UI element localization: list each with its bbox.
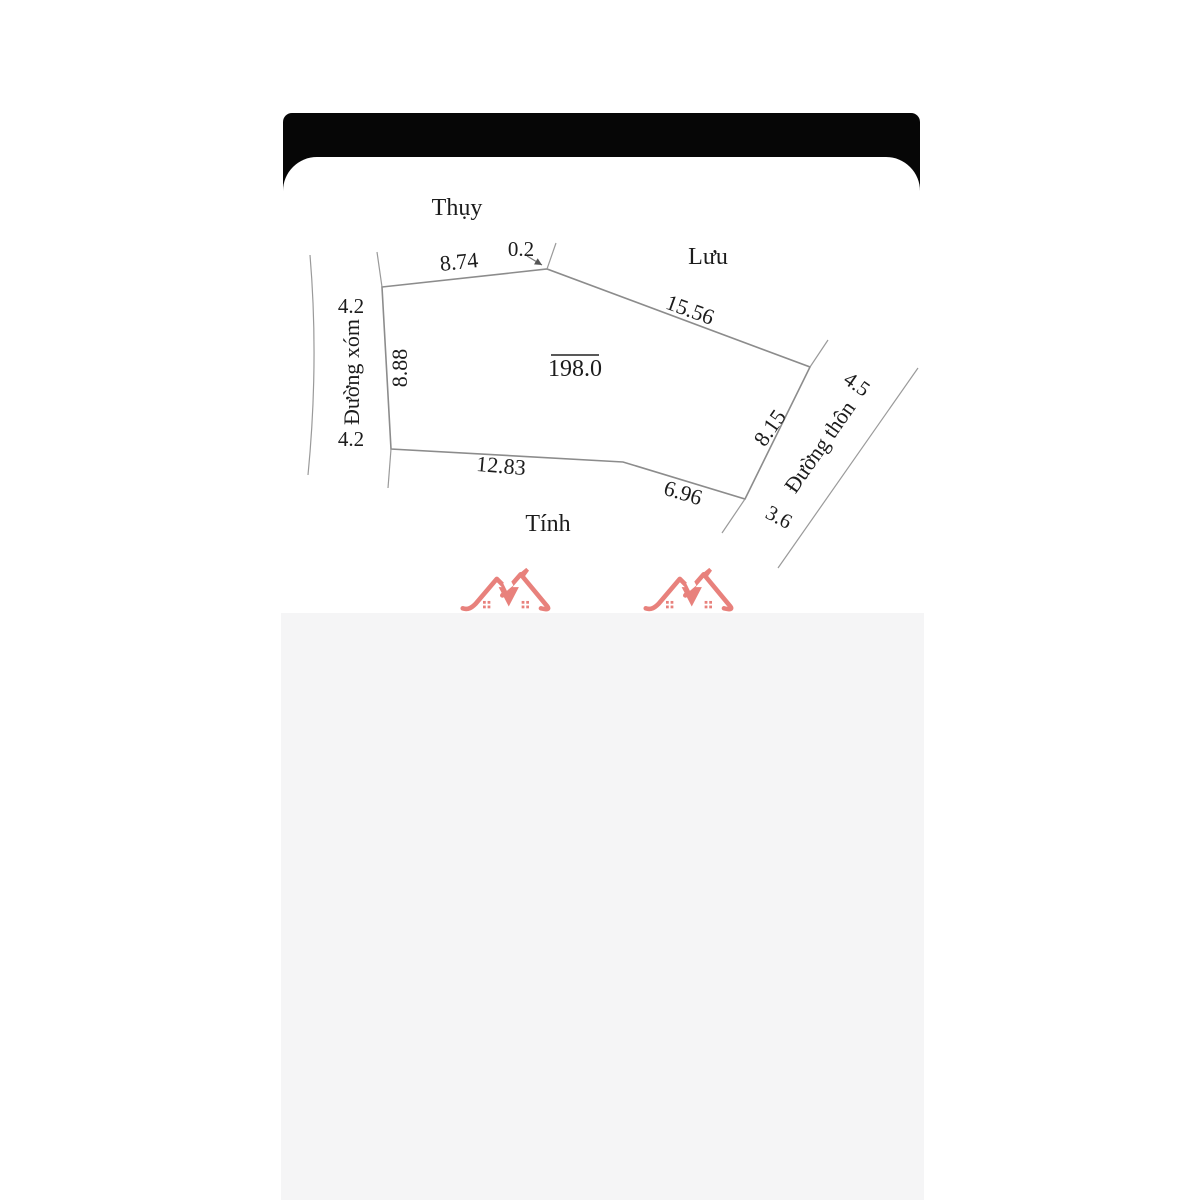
- dim-bottom-edge: 12.83: [475, 451, 526, 480]
- left-road-width-top: 4.2: [338, 294, 364, 318]
- land-plot-diagram: Thụy Lưu Tính 198.0 8.74 0.2 15.56 8.15 …: [0, 0, 1200, 1200]
- parcel-area-value: 198.0: [548, 356, 602, 382]
- dim-top-notch: 0.2: [508, 237, 534, 261]
- left-road-edge: [308, 255, 314, 475]
- dim-left-edge: 8.88: [387, 349, 412, 388]
- left-road-name: Đường xóm: [339, 319, 364, 425]
- boundary-extension-lines: [377, 243, 828, 533]
- right-road-name: Đường thôn: [779, 396, 860, 497]
- dim-lower-right-edge: 6.96: [661, 475, 705, 510]
- neighbor-label-right: Lưu: [688, 244, 728, 270]
- left-road-width-bottom: 4.2: [338, 427, 364, 451]
- watermark-house-icon: [646, 568, 731, 609]
- neighbor-label-bottom: Tính: [525, 511, 570, 537]
- dim-right-edge: 8.15: [748, 405, 791, 451]
- watermark-house-icon: [463, 568, 548, 609]
- house-window-left: [483, 601, 490, 608]
- screenshot-stage: Thụy Lưu Tính 198.0 8.74 0.2 15.56 8.15 …: [0, 0, 1200, 1200]
- dim-top-edge: 8.74: [438, 247, 479, 276]
- dim-upper-right-edge: 15.56: [663, 289, 718, 329]
- parcel-boundary: [382, 269, 810, 499]
- house-window-left: [666, 601, 673, 608]
- road-lines: [308, 255, 918, 568]
- neighbor-label-top: Thụy: [432, 195, 483, 221]
- right-road-width-bottom: 3.6: [762, 500, 796, 534]
- house-window-right: [522, 601, 529, 608]
- right-road-width-top: 4.5: [839, 367, 874, 402]
- house-window-right: [705, 601, 712, 608]
